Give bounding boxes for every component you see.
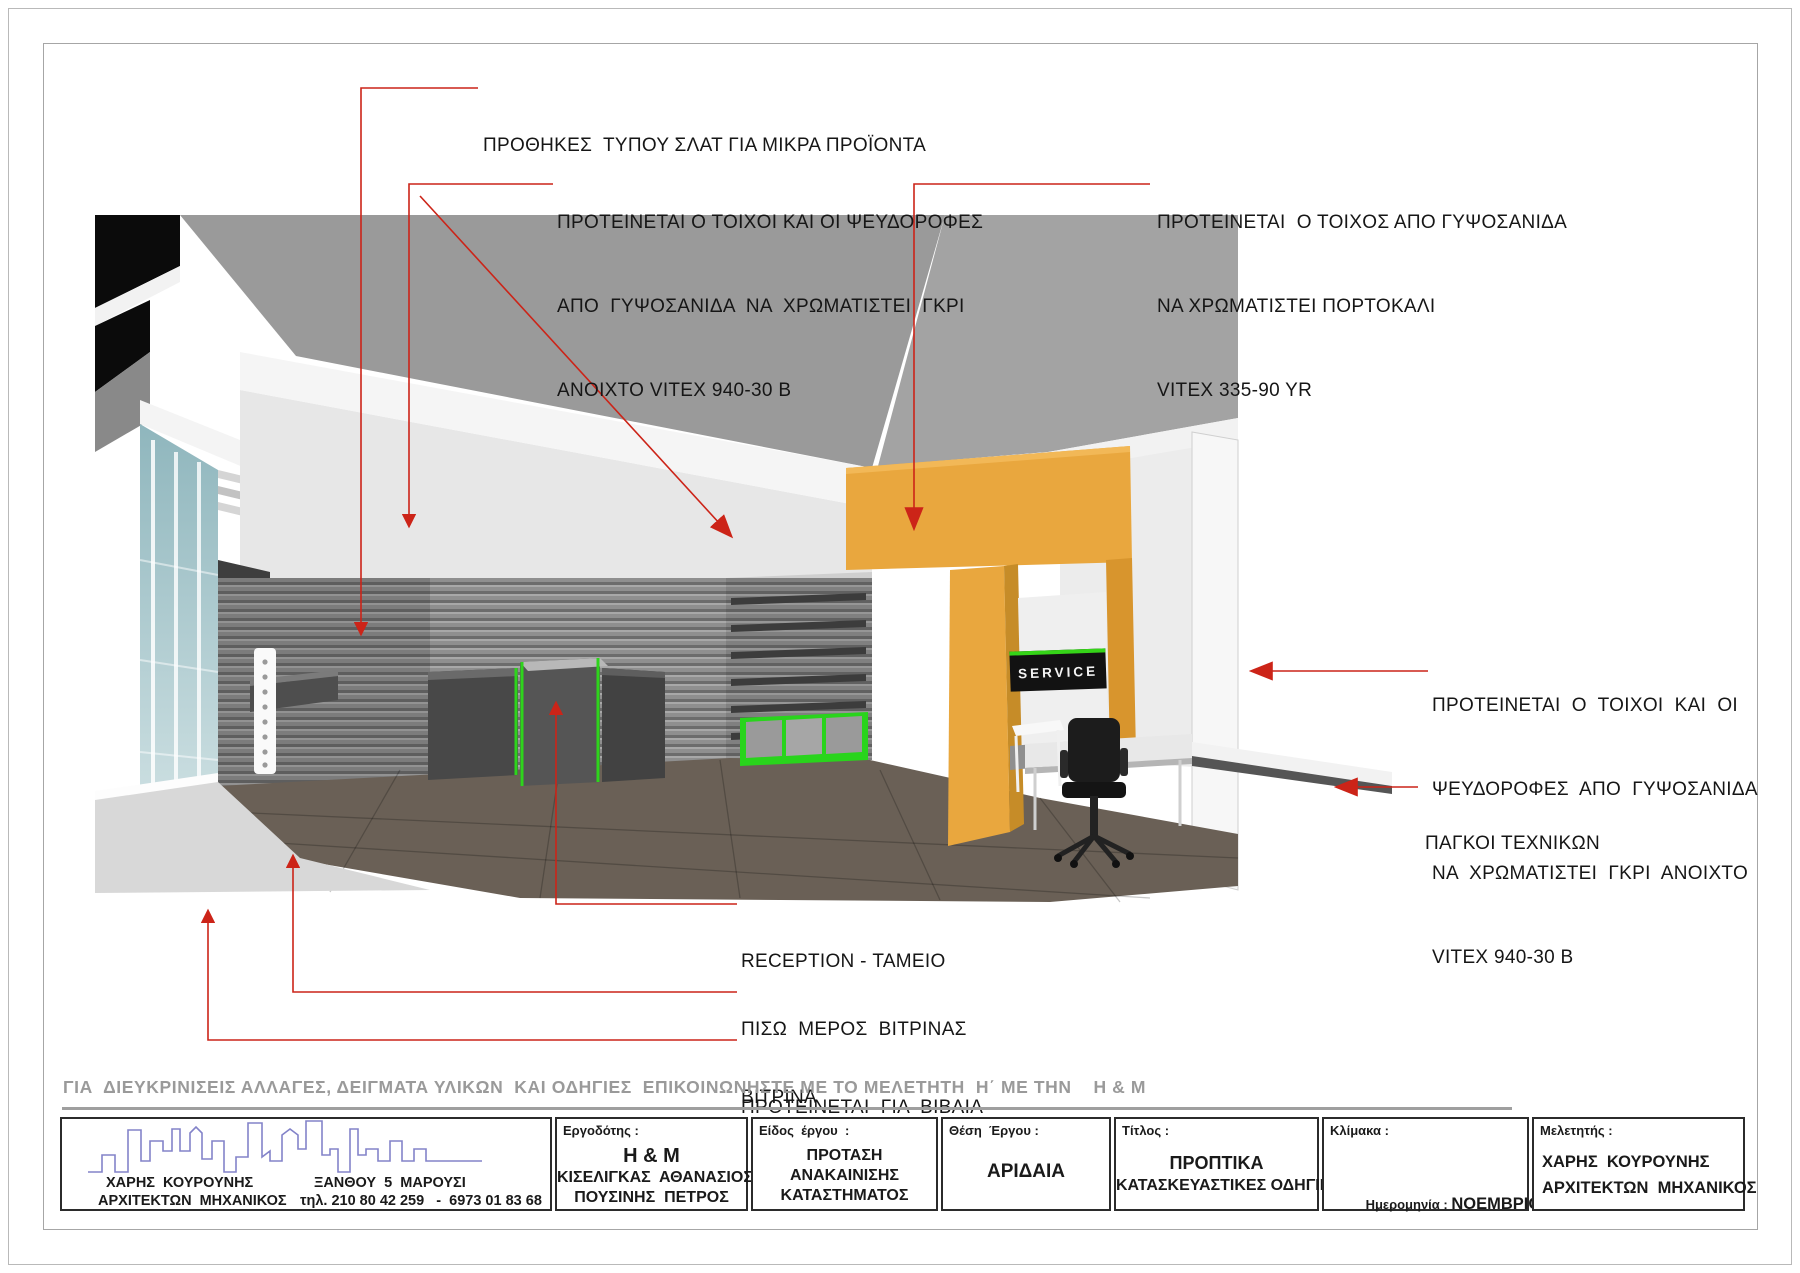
contact-note: ΓΙΑ ΔΙΕΥΚΡΙΝΙΣΕΙΣ ΑΛΛΑΓΕΣ, ΔΕΙΓΜΑΤΑ ΥΛΙΚ… (63, 1077, 1146, 1098)
location-label: Θέση Έργου : (949, 1123, 1039, 1138)
service-sign: SERVICE (1009, 648, 1106, 691)
firm-name: ΧΑΡΗΣ ΚΟΥΡΟΥΝΗΣ (106, 1175, 253, 1191)
firm-title: ΑΡΧΙΤΕΚΤΩΝ ΜΗΧΑΝΙΚΟΣ (98, 1193, 287, 1209)
designer-label: Μελετητής : (1540, 1123, 1613, 1138)
cell-designer: Μελετητής : ΧΑΡΗΣ ΚΟΥΡΟΥΝΗΣ ΑΡΧΙΤΕΚΤΩΝ Μ… (1532, 1117, 1745, 1211)
cell-project-type: Είδος έργου : ΠΡΟΤΑΣΗ ΑΝΑΚΑΙΝΙΣΗΣ ΚΑΤΑΣΤ… (751, 1117, 938, 1211)
reception-counters (428, 658, 665, 786)
project-type-label: Είδος έργου : (759, 1123, 849, 1138)
title-block: ΧΑΡΗΣ ΚΟΥΡΟΥΝΗΣ ΑΡΧΙΤΕΚΤΩΝ ΜΗΧΑΝΙΚΟΣ ΞΑΝ… (60, 1117, 1746, 1212)
client-person-1: ΚΙΣΕΛΙΓΚΑΣ ΑΘΑΝΑΣΙΟΣ (557, 1169, 746, 1187)
annotation-gray-walls-left: ΠΡΟΤΕΙΝΕΤΑΙ Ο ΤΟΙΧΟΙ ΚΑΙ ΟΙ ΨΕΥΔΟΡΟΦΕΣ Α… (557, 153, 983, 461)
annotation-tech-benches: ΠΑΓΚΟΙ ΤΕΧΝΙΚΩΝ (1425, 774, 1600, 914)
client-label: Εργοδότης : (563, 1123, 639, 1138)
firm-address: ΞΑΝΘΟΥ 5 ΜΑΡΟΥΣΙ (314, 1175, 466, 1191)
client-name: H & M (557, 1145, 746, 1168)
location-value: ΑΡΙΔΑΙΑ (943, 1161, 1109, 1183)
annotation-orange-wall: ΠΡΟΤΕΙΝΕΤΑΙ Ο ΤΟΙΧΟΣ ΑΠΟ ΓΥΨΟΣΑΝΙΔΑ ΝΑ Χ… (1157, 153, 1567, 461)
cell-doc-title: Τίτλος : ΠΡΟΠΤΙΚΑ ΚΑΤΑΣΚΕΥΑΣΤΙΚΕΣ ΟΔΗΓΙΕ… (1114, 1117, 1319, 1211)
doc-title-label: Τίτλος : (1122, 1123, 1169, 1138)
drawing-sheet: SERVICE ΠΡΟΘΗΚΕΣ ΤΥΠΟΥ ΣΛΑΤ ΓΙΑ ΜΙΚΡΑ ΠΡ… (0, 0, 1800, 1273)
date-label: Ημερομηνία : (1366, 1197, 1452, 1212)
designer-name: ΧΑΡΗΣ ΚΟΥΡΟΥΝΗΣ (1542, 1153, 1710, 1172)
cell-scale-date: Κλίμακα : Ημερομηνία : ΝΟΕΜΒΡΙΟΣ 2009 (1322, 1117, 1529, 1211)
designer-title: ΑΡΧΙΤΕΚΤΩΝ ΜΗΧΑΝΙΚΟΣ (1542, 1179, 1757, 1198)
firm-phone: τηλ. 210 80 42 259 - 6973 01 83 68 (300, 1193, 542, 1209)
service-sign-label: SERVICE (1018, 663, 1099, 681)
footer-divider (62, 1107, 1512, 1110)
green-display-cabinet (740, 712, 868, 766)
cell-client: Εργοδότης : H & M ΚΙΣΕΛΙΓΚΑΣ ΑΘΑΝΑΣΙΟΣ Π… (555, 1117, 748, 1211)
client-person-2: ΠΟΥΣΙΝΗΣ ΠΕΤΡΟΣ (557, 1189, 746, 1207)
firm-logo-cell: ΧΑΡΗΣ ΚΟΥΡΟΥΝΗΣ ΑΡΧΙΤΕΚΤΩΝ ΜΗΧΑΝΙΚΟΣ ΞΑΝ… (60, 1117, 552, 1211)
cell-location: Θέση Έργου : ΑΡΙΔΑΙΑ (941, 1117, 1111, 1211)
scale-label: Κλίμακα : (1330, 1123, 1389, 1138)
